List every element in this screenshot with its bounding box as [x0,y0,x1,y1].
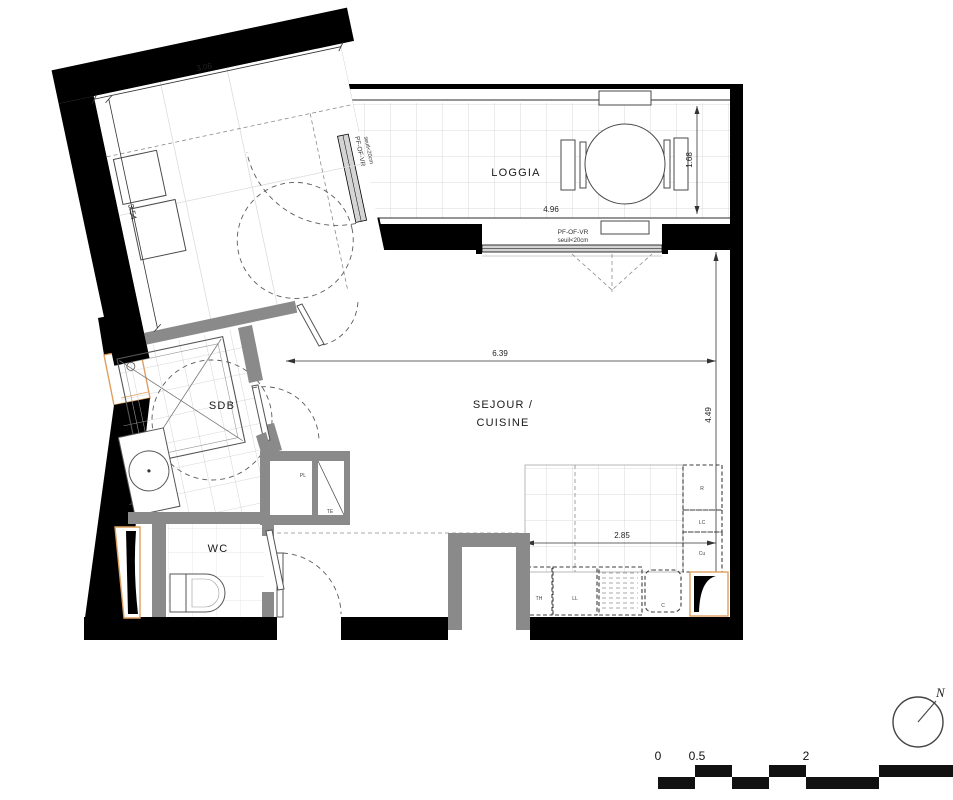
lc-label: LC [699,520,706,526]
sejour-window-type: PF-OF-VR [558,229,589,236]
loggia-width-dim: 4.96 [543,205,559,214]
sink-hatch [599,567,642,615]
round-table [585,124,665,204]
svg-text:1.68: 1.68 [685,152,694,168]
wc-wall-right-bottom [262,592,274,617]
wall-right [730,84,743,640]
room-loggia: LOGGIA 4.96 1.68 [338,84,743,234]
sejour-width-dim: 6.39 [286,349,716,364]
washer-box [553,567,597,615]
compass-north-label: N [935,685,946,700]
entrance-recess [448,533,530,630]
loggia-label: LOGGIA [491,167,540,179]
compass-needle [918,701,936,722]
chambre-door-swing [323,299,358,345]
sejour-window: PF-OF-VR seuil<20cm [476,229,668,292]
tilted-wing: PF-OF-VR seuil<20cm 3.06 3.54 [41,8,441,516]
svg-text:6.39: 6.39 [492,349,508,358]
kitchen-duct [690,572,728,616]
c-label: C [661,603,665,609]
wc-toilet [170,574,225,612]
sejour-label-1: SEJOUR / [473,399,533,411]
kitchen-area: R LC Cu TH LL C 2.85 [525,465,728,616]
sejour-height-dim: 4.49 [704,252,719,614]
sejour-label-2: CUISINE [476,417,529,429]
wall-bottom-right [530,617,743,640]
kitchen-tiles [525,465,683,572]
chambre-door-leaf [297,304,324,346]
washer-label: LL [572,596,578,602]
scale-2: 2 [803,749,810,763]
scale-bar: 0 0.5 2 [655,749,953,789]
chambre-door [297,299,358,346]
window-jamb-left [476,243,482,254]
hob-label: Cu [699,551,706,557]
wc-wall-left [152,524,166,617]
chair-bottom [601,221,649,234]
th-label: TH [536,596,543,602]
closet-te-label: TE [327,509,334,515]
scale-0: 0 [655,749,662,763]
fridge-label: R [700,486,704,492]
chair-left [561,140,575,190]
entrance-door-swing [283,553,341,614]
th-box [527,567,552,615]
loggia-railing [338,84,743,89]
svg-text:2.85: 2.85 [614,531,630,540]
sejour-window-sill: seuil<20cm [558,238,589,244]
wall-under-loggia-right [662,224,743,250]
svg-text:4.49: 4.49 [704,407,713,423]
entrance-door [277,553,341,617]
scale-05: 0.5 [689,749,706,763]
loggia-tiles [345,103,730,218]
wc-label: WC [208,543,229,555]
sdb-door [252,385,319,442]
floor-plan: LOGGIA 4.96 1.68 PF-OF-VR seuil<20cm SEJ… [0,0,953,800]
north-compass: N [893,685,946,747]
wall-bottom-mid [341,617,448,640]
room-wc: WC [115,524,284,618]
closet-pl-label: PL [300,473,306,479]
sdb-label: SDB [209,400,235,412]
floor-plan-drawing: LOGGIA 4.96 1.68 PF-OF-VR seuil<20cm SEJ… [0,0,953,800]
chair-top [599,91,651,105]
window-jamb-right [662,243,668,254]
sdb-wall-bottom [128,512,270,524]
